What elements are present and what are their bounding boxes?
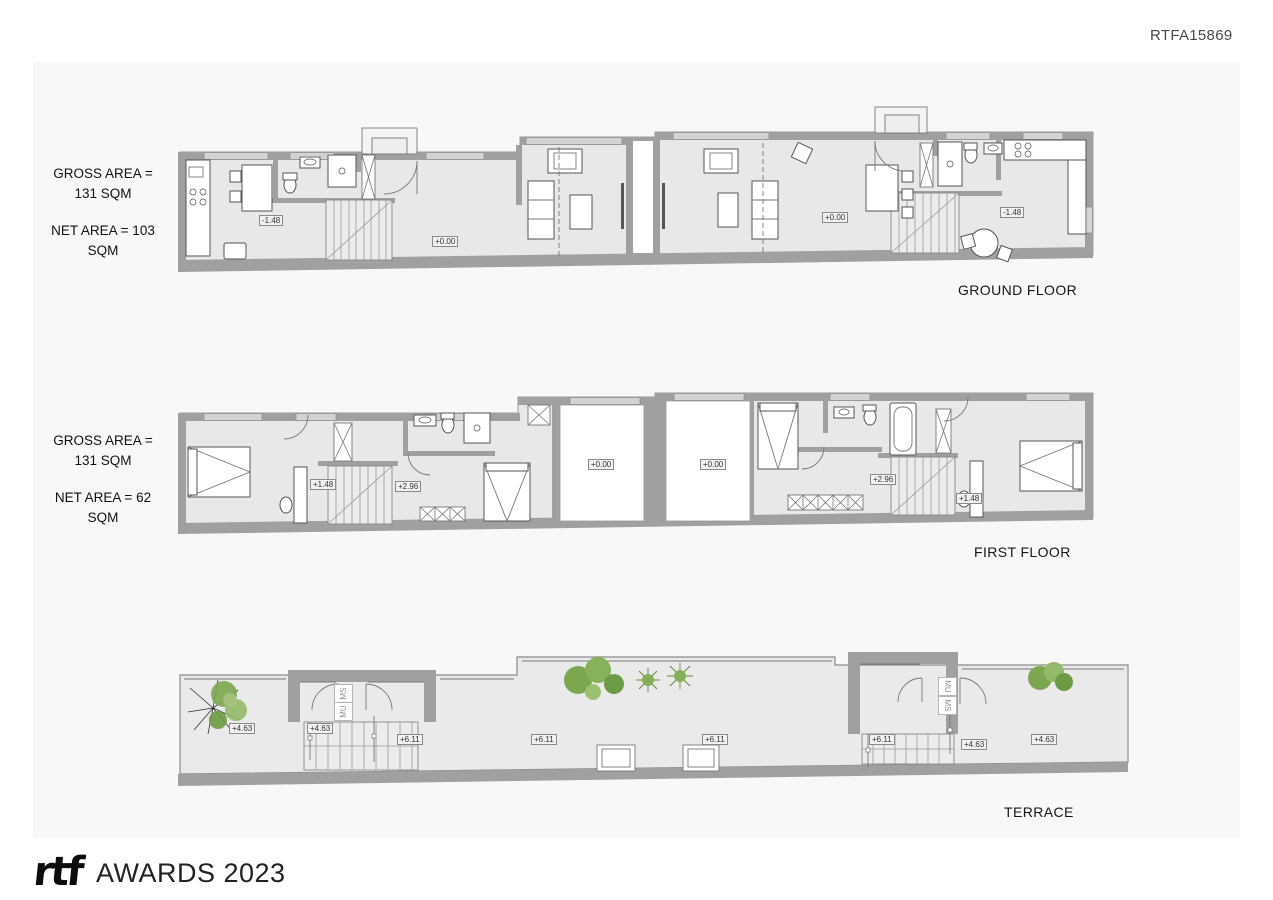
document-code: RTFA15869 [1150, 27, 1232, 44]
plan-sheet-page: RTFA15869 [0, 0, 1273, 900]
elevation-marker: +4.63 [1031, 734, 1057, 745]
stair-code-label: MU [334, 702, 353, 721]
elevation-marker: +2.96 [395, 481, 421, 492]
elevation-marker: +0.00 [822, 212, 848, 223]
elevation-marker: +4.63 [961, 739, 987, 750]
awards-text: AWARDS 2023 [96, 858, 286, 889]
wardrobe-right [788, 495, 863, 510]
stairs-left [326, 200, 392, 260]
area-note-first-floor: GROSS AREA = 131 SQM NET AREA = 62 SQM [44, 431, 162, 545]
elevation-marker: +2.96 [870, 474, 896, 485]
elevation-marker: +4.63 [307, 723, 333, 734]
first-floor-plan [178, 385, 1098, 550]
ground-floor-plan [178, 95, 1098, 295]
stairs-right [891, 457, 955, 515]
bed-left-main [188, 447, 250, 497]
floor-label-terrace: TERRACE [1004, 804, 1074, 820]
elevation-marker: +1.48 [956, 493, 982, 504]
wardrobe-left [420, 507, 465, 521]
bed-left-second [484, 463, 530, 521]
elevation-marker: +6.11 [397, 734, 423, 745]
net-area-text: NET AREA = 103 SQM [44, 221, 162, 260]
elevation-marker: +0.00 [588, 459, 614, 470]
stairs-right [891, 193, 959, 253]
bed-right-second [758, 403, 798, 469]
stair-code-label: MS [334, 684, 353, 703]
elevation-marker: +4.63 [229, 723, 255, 734]
floor-label-first: FIRST FLOOR [974, 544, 1071, 560]
rtf-logo: rtf [28, 851, 86, 895]
area-note-ground-floor: GROSS AREA = 131 SQM NET AREA = 103 SQM [44, 164, 162, 278]
elevation-marker: -1.48 [259, 215, 283, 226]
entry-canopy-right [875, 107, 927, 133]
elevation-marker: +0.00 [432, 236, 458, 247]
stair-code-label: MS [938, 696, 957, 715]
stairs-left [328, 466, 392, 524]
elevation-marker: +1.48 [310, 479, 336, 490]
entry-canopy-left [362, 128, 417, 154]
elevation-marker: +6.11 [702, 734, 728, 745]
elevation-marker: -1.48 [1000, 207, 1024, 218]
elevation-marker: +6.11 [531, 734, 557, 745]
elevation-marker: +0.00 [700, 459, 726, 470]
skylight-right [683, 745, 719, 771]
rtf-logo-text: rtf [31, 851, 86, 895]
net-area-text: NET AREA = 62 SQM [44, 488, 162, 527]
elevation-marker: +6.11 [869, 734, 895, 745]
skylight-left [597, 745, 635, 771]
bed-right-main [1020, 441, 1082, 491]
gross-area-text: GROSS AREA = 131 SQM [44, 431, 162, 470]
gross-area-text: GROSS AREA = 131 SQM [44, 164, 162, 203]
floor-label-ground: GROUND FLOOR [958, 282, 1077, 298]
stair-code-label: MU [938, 677, 957, 696]
footer-branding: rtf AWARDS 2023 [28, 850, 286, 896]
